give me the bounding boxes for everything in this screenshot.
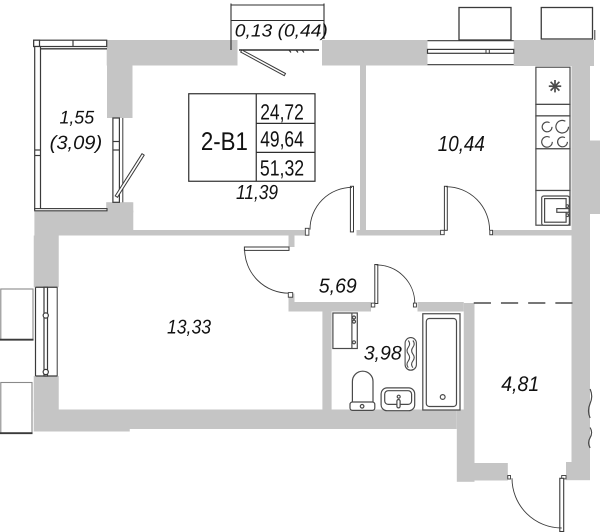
svg-text:10,44: 10,44 <box>438 131 485 156</box>
svg-text:4,81: 4,81 <box>501 373 539 396</box>
svg-text:0,13 (0,44): 0,13 (0,44) <box>235 21 328 41</box>
svg-text:(3,09): (3,09) <box>50 133 103 154</box>
svg-text:51,32: 51,32 <box>260 155 304 180</box>
svg-text:1,55: 1,55 <box>59 106 94 127</box>
svg-text:13,33: 13,33 <box>167 317 211 339</box>
svg-text:2-В1: 2-В1 <box>201 128 248 156</box>
svg-text:11,39: 11,39 <box>236 182 278 204</box>
svg-text:3,98: 3,98 <box>364 343 402 365</box>
svg-text:24,72: 24,72 <box>260 99 304 124</box>
svg-text:49,64: 49,64 <box>260 126 304 151</box>
svg-text:5,69: 5,69 <box>319 276 357 298</box>
